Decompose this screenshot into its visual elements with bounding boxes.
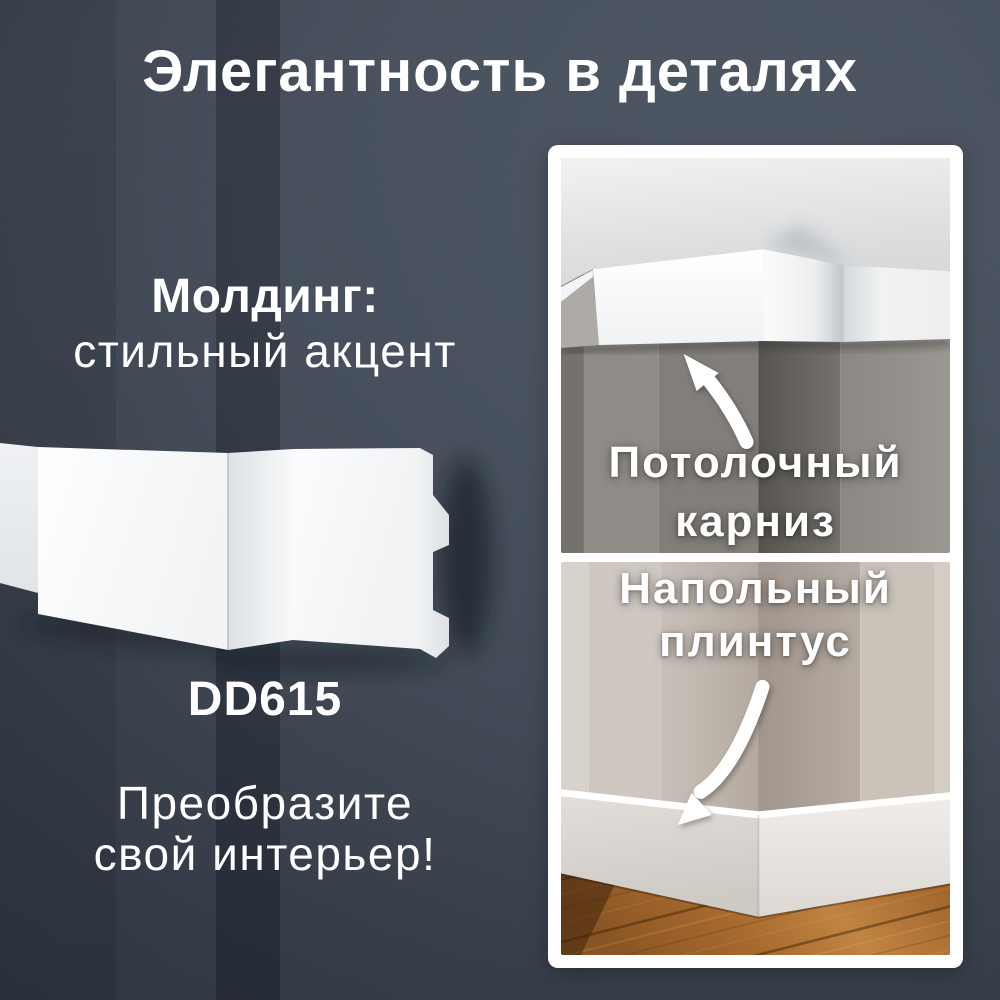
floor-plinth-photo: Напольный плинтус <box>561 562 950 955</box>
ceiling-cornice-photo: Потолочный карниз <box>561 158 950 553</box>
molding-3d-render <box>0 436 520 686</box>
product-tagline-light: стильный акцент <box>0 326 530 376</box>
floor-plinth-label: Напольный плинтус <box>561 562 950 668</box>
cta-text: Преобразите свой интерьер! <box>0 778 530 880</box>
product-code: DD615 <box>0 672 530 727</box>
floor-plinth-label-line1: Напольный <box>561 562 950 615</box>
promo-banner: Элегантность в деталях Молдинг: стильный… <box>0 0 1000 1000</box>
ceiling-cornice-label: Потолочный карниз <box>561 433 950 553</box>
product-tagline-bold: Молдинг: <box>0 268 530 326</box>
product-tagline: Молдинг: стильный акцент <box>0 268 530 376</box>
page-title: Элегантность в деталях <box>0 40 1000 104</box>
floor-plinth-label-line2: плинтус <box>561 615 950 668</box>
photo-panel: Потолочный карниз <box>548 145 963 968</box>
cta-line-2: свой интерьер! <box>0 829 530 880</box>
ceiling-cornice-label-line1: Потолочный <box>561 433 950 492</box>
cta-line-1: Преобразите <box>0 778 530 829</box>
ceiling-cornice-label-line2: карниз <box>561 492 950 551</box>
